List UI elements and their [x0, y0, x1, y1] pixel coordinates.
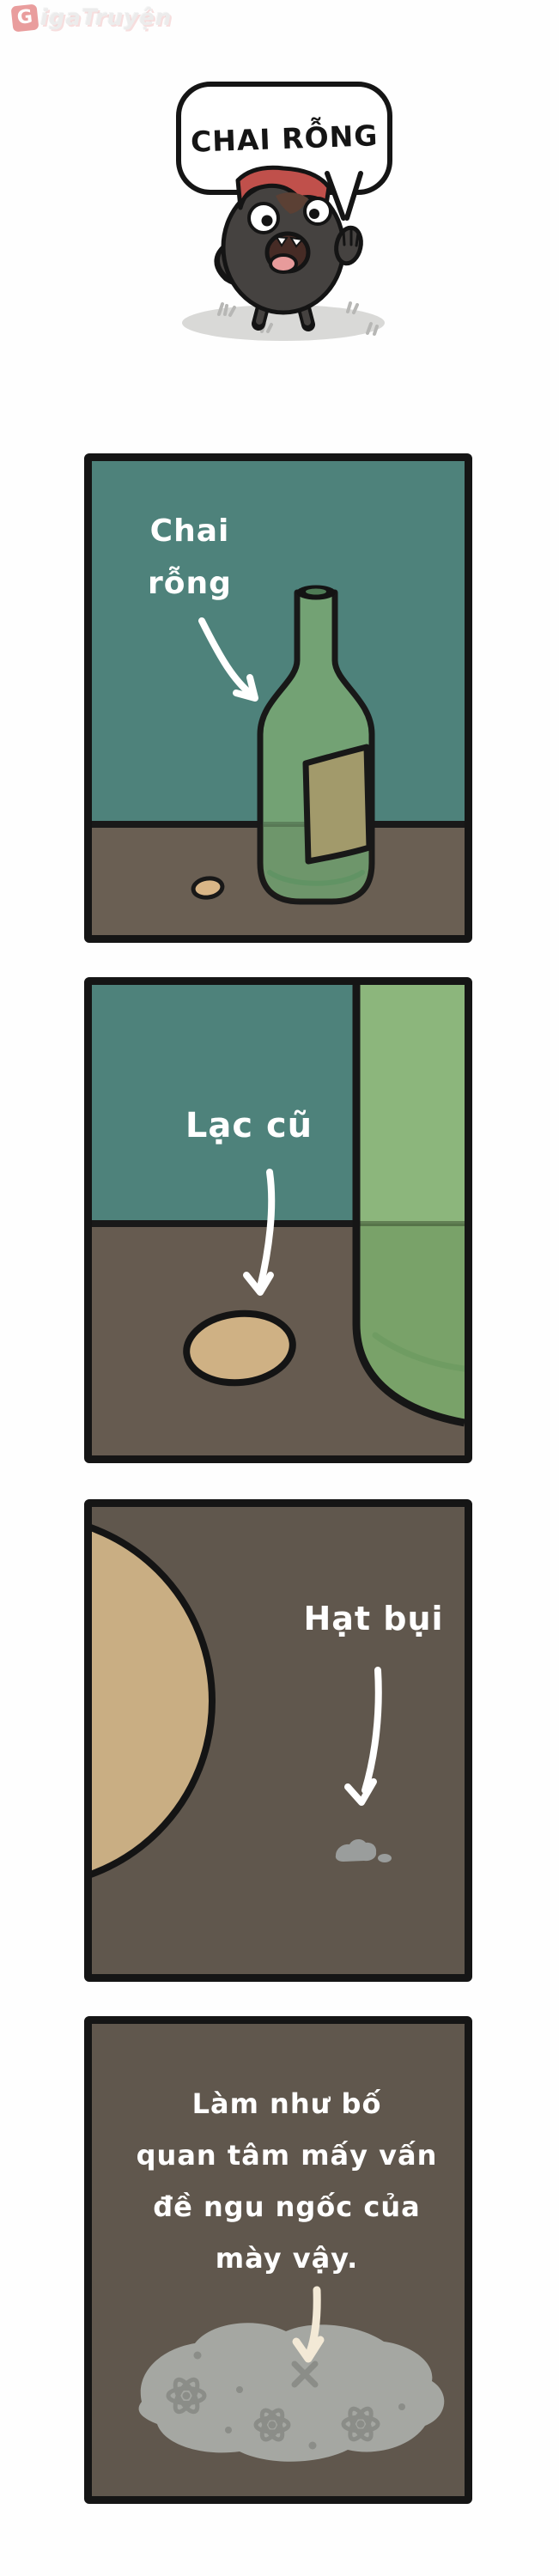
caption-line: Làm như bố	[132, 2078, 441, 2129]
caption-chai-rong: Chai rỗng	[112, 505, 267, 610]
comic-panel-2	[84, 977, 472, 1463]
floor-line	[92, 1220, 360, 1227]
bottle-label	[306, 747, 369, 861]
panel-3-art	[92, 1507, 465, 1974]
caption-lac-cu: Lạc cũ	[155, 1106, 343, 1145]
speech-bubble-text: CHAI RỖNG	[190, 118, 379, 159]
watermark-logo-icon: G	[11, 4, 39, 33]
character-illustration	[172, 163, 395, 343]
panel-2-art	[92, 985, 465, 1455]
caption-line: Hạt bụi	[288, 1599, 459, 1638]
caption-line: mày vậy.	[132, 2233, 441, 2284]
caption-hat-bui: Hạt bụi	[288, 1599, 459, 1638]
caption-line: đề ngu ngốc của	[132, 2181, 441, 2233]
caption-line: Chai	[112, 505, 267, 557]
caption-monologue: Làm như bố quan tâm mấy vấn đề ngu ngốc …	[132, 2078, 441, 2284]
watermark: G igaTruyện	[12, 5, 172, 31]
caption-line: quan tâm mấy vấn	[132, 2129, 441, 2181]
comic-panel-3	[84, 1499, 472, 1982]
comic-page: G igaTruyện CHAI RỖNG	[0, 0, 559, 2576]
caption-line: rỗng	[112, 557, 267, 610]
watermark-brand-text: igaTruyện	[40, 5, 172, 31]
caption-line: Lạc cũ	[155, 1106, 343, 1145]
character-mouth	[267, 234, 308, 272]
peanut-small	[192, 877, 224, 900]
